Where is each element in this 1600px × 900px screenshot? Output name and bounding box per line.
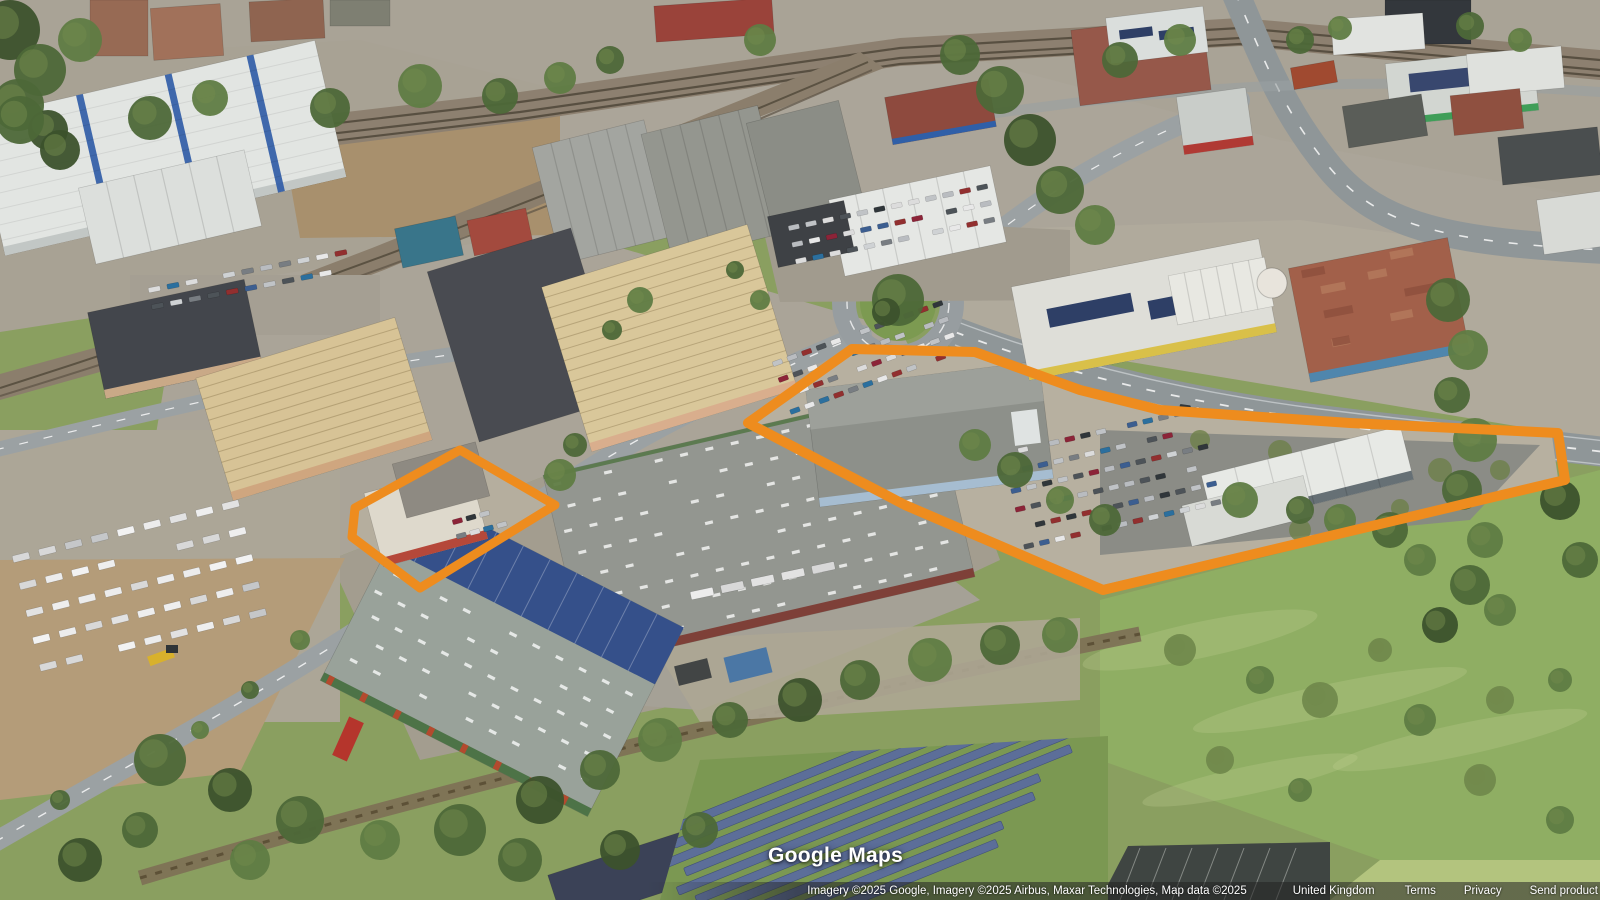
aerial-imagery [0,0,1600,900]
privacy-link[interactable]: Privacy [1464,885,1502,897]
terms-link[interactable]: Terms [1405,885,1436,897]
send-feedback-link[interactable]: Send product [1530,885,1598,897]
attribution-region: United Kingdom [1293,885,1375,897]
attribution-bar: Imagery ©2025 Google, Imagery ©2025 Airb… [647,882,1600,900]
imagery-attribution: Imagery ©2025 Google, Imagery ©2025 Airb… [807,885,1246,897]
google-maps-watermark: Google Maps [768,844,903,868]
map-canvas[interactable]: Google Maps Imagery ©2025 Google, Imager… [0,0,1600,900]
